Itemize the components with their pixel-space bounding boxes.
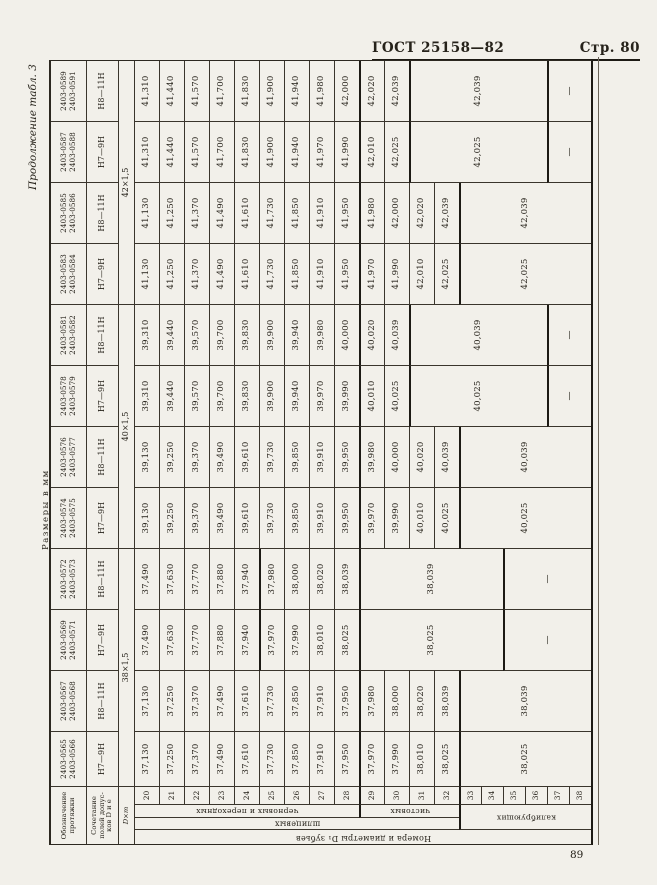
value-cell: 40,000 [334,305,359,366]
page-ref: Стр. 80 [580,40,640,56]
value-cell: 41,730 [259,183,284,244]
value-cell: 41,570 [184,122,209,183]
value-cell: 41,730 [259,244,284,305]
value-cell: 39,940 [284,305,309,366]
value-cell: 42,039 [459,183,591,244]
value-cell: 40,039 [459,427,591,488]
value-cell: 39,830 [234,305,259,366]
value-cell: 41,850 [284,244,309,305]
axis-title: Номера и диаметры D₁ зубьев [134,830,591,844]
value-cell: 39,130 [134,488,159,549]
value-cell: 38,020 [309,549,334,610]
value-cell: 42,000 [334,61,359,122]
designation-cell: 2403-05812403-0582 [51,305,86,366]
value-cell: 38,039 [359,549,503,610]
value-cell: 42,039 [384,61,409,122]
value-cell: 40,039 [384,305,409,366]
designation-cell: 2403-05692403-0571 [51,610,86,671]
tooth-number-cell: 37 [547,787,569,805]
value-cell: 37,630 [159,549,184,610]
value-cell: 42,025 [384,122,409,183]
value-cell: 40,025 [384,366,409,427]
value-cell: 37,910 [309,732,334,787]
value-cell: 39,850 [284,488,309,549]
value-cell: 39,370 [184,427,209,488]
value-cell: 38,000 [384,671,409,732]
value-cell: 42,025 [409,122,547,183]
group-rough: черновых и переходных [134,805,359,818]
tolerance-cell: Н7—9Н [86,610,118,671]
tolerance-cell: Н8—11Н [86,549,118,610]
value-cell: 37,730 [259,671,284,732]
value-cell: 41,940 [284,122,309,183]
dash-cell: — [547,366,591,427]
value-cell: 37,950 [334,732,359,787]
tooth-number-cell: 32 [434,787,459,805]
value-cell: 41,440 [159,61,184,122]
designation-cell: 2403-05672403-0568 [51,671,86,732]
value-cell: 41,980 [309,61,334,122]
value-cell: 37,370 [184,671,209,732]
value-cell: 39,850 [284,427,309,488]
value-cell: 37,490 [209,732,234,787]
value-cell: 41,990 [334,122,359,183]
dash-cell: — [503,610,591,671]
value-cell: 41,980 [359,183,384,244]
value-cell: 41,250 [159,244,184,305]
value-cell: 41,830 [234,122,259,183]
tolerance-cell: Н8—11Н [86,671,118,732]
value-cell: 37,990 [284,610,309,671]
value-cell: 39,730 [259,488,284,549]
tooth-number-cell: 35 [503,787,525,805]
value-cell: 39,970 [309,366,334,427]
designation-cell: 2403-05652403-0566 [51,732,86,787]
value-cell: 42,010 [409,244,434,305]
tooth-number-cell: 38 [569,787,591,805]
tooth-number-cell: 36 [525,787,547,805]
size-group-cell: 38×1,5 [118,549,134,787]
value-cell: 39,440 [159,305,184,366]
value-cell: 41,910 [309,183,334,244]
value-cell: 37,130 [134,732,159,787]
tooth-number-cell: 27 [309,787,334,805]
value-cell: 39,990 [334,366,359,427]
value-cell: 40,025 [459,488,591,549]
value-cell: 41,490 [209,244,234,305]
value-cell: 41,130 [134,183,159,244]
value-cell: 40,025 [409,366,547,427]
value-cell: 39,700 [209,366,234,427]
value-cell: 39,570 [184,305,209,366]
value-cell: 42,000 [384,183,409,244]
designation-cell: 2403-05762403-0577 [51,427,86,488]
value-cell: 41,950 [334,244,359,305]
tooth-number-cell: 30 [384,787,409,805]
value-cell: 37,250 [159,671,184,732]
tooth-number-cell: 25 [259,787,284,805]
value-cell: 37,980 [359,671,384,732]
tooth-number-cell: 31 [409,787,434,805]
value-cell: 41,900 [259,61,284,122]
page-header: ГОСТ 25158—82 Стр. 80 [372,40,640,61]
group-spline: шлицевых [134,818,459,830]
value-cell: 40,010 [409,488,434,549]
value-cell: 37,610 [234,671,259,732]
value-cell: 38,039 [334,549,359,610]
value-cell: 41,310 [134,61,159,122]
value-cell: 41,940 [284,61,309,122]
designation-cell: 2403-05742403-0575 [51,488,86,549]
value-cell: 37,950 [334,671,359,732]
value-cell: 39,250 [159,427,184,488]
value-cell: 38,020 [409,671,434,732]
value-cell: 37,250 [159,732,184,787]
value-cell: 39,900 [259,305,284,366]
value-cell: 39,610 [234,427,259,488]
page-number: 89 [570,849,583,861]
designation-cell: 2403-05832403-0584 [51,244,86,305]
corner-size-label: D×m [118,787,134,844]
value-cell: 41,970 [359,244,384,305]
value-cell: 39,440 [159,366,184,427]
value-cell: 37,990 [384,732,409,787]
value-cell: 39,490 [209,488,234,549]
value-cell: 39,130 [134,427,159,488]
value-cell: 41,250 [159,183,184,244]
value-cell: 41,910 [309,244,334,305]
value-cell: 39,700 [209,305,234,366]
value-cell: 37,630 [159,610,184,671]
value-cell: 41,310 [134,122,159,183]
value-cell: 38,025 [459,732,591,787]
value-cell: 39,310 [134,366,159,427]
value-cell: 41,950 [334,183,359,244]
value-cell: 39,830 [234,366,259,427]
value-cell: 37,490 [134,549,159,610]
value-cell: 39,310 [134,305,159,366]
value-cell: 41,900 [259,122,284,183]
value-cell: 39,970 [359,488,384,549]
value-cell: 42,039 [434,183,459,244]
value-cell: 39,250 [159,488,184,549]
tooth-number-cell: 23 [209,787,234,805]
value-cell: 39,950 [334,488,359,549]
value-cell: 38,010 [409,732,434,787]
tolerance-cell: Н7—9Н [86,732,118,787]
dash-cell: — [547,122,591,183]
scanned-page: { "page": { "gost_header": "ГОСТ 25158—8… [0,0,657,885]
designation-cell: 2403-05852403-0586 [51,183,86,244]
designation-cell: 2403-05782403-0579 [51,366,86,427]
value-cell: 38,039 [459,671,591,732]
value-cell: 38,025 [359,610,503,671]
tolerance-cell: Н8—11Н [86,305,118,366]
broach-table: Обозначение протяжкиСочетание полей допу… [49,60,593,845]
value-cell: 41,610 [234,244,259,305]
tooth-number-cell: 24 [234,787,259,805]
value-cell: 40,020 [359,305,384,366]
value-cell: 38,039 [434,671,459,732]
dash-cell: — [547,61,591,122]
tolerance-cell: Н7—9Н [86,366,118,427]
tolerance-cell: Н8—11Н [86,183,118,244]
value-cell: 41,830 [234,61,259,122]
tooth-number-cell: 22 [184,787,209,805]
value-cell: 37,970 [359,732,384,787]
tolerance-cell: Н7—9Н [86,122,118,183]
value-cell: 41,700 [209,122,234,183]
value-cell: 42,020 [359,61,384,122]
continuation-note: Продолжение табл. 3 [27,64,39,190]
value-cell: 40,020 [409,427,434,488]
gost-number: ГОСТ 25158—82 [372,40,504,56]
corner-designation-label: Обозначение протяжки [51,787,86,844]
value-cell: 38,025 [434,732,459,787]
size-group-cell: 40×1,5 [118,305,134,549]
size-group-cell: 42×1,5 [118,61,134,305]
value-cell: 37,770 [184,610,209,671]
tolerance-cell: Н7—9Н [86,488,118,549]
value-cell: 41,610 [234,183,259,244]
value-cell: 41,490 [209,183,234,244]
value-cell: 37,490 [134,610,159,671]
value-cell: 42,025 [434,244,459,305]
value-cell: 38,025 [334,610,359,671]
value-cell: 41,130 [134,244,159,305]
value-cell: 37,490 [209,671,234,732]
group-calibrating: калибрующих [459,805,591,830]
value-cell: 39,950 [334,427,359,488]
tolerance-cell: Н8—11Н [86,61,118,122]
value-cell: 37,370 [184,732,209,787]
value-cell: 41,850 [284,183,309,244]
value-cell: 42,010 [359,122,384,183]
value-cell: 41,370 [184,244,209,305]
value-cell: 37,880 [209,549,234,610]
value-cell: 37,980 [259,549,284,610]
value-cell: 39,910 [309,427,334,488]
value-cell: 37,970 [259,610,284,671]
value-cell: 41,970 [309,122,334,183]
value-cell: 37,610 [234,732,259,787]
designation-cell: 2403-05892403-0591 [51,61,86,122]
value-cell: 37,850 [284,732,309,787]
value-cell: 39,940 [284,366,309,427]
tooth-number-cell: 28 [334,787,359,805]
dash-cell: — [503,549,591,610]
value-cell: 41,990 [384,244,409,305]
value-cell: 37,850 [284,671,309,732]
tooth-number-cell: 29 [359,787,384,805]
table-outer-rule [598,57,599,845]
tooth-number-cell: 26 [284,787,309,805]
tolerance-cell: Н7—9Н [86,244,118,305]
group-finish: чистовых [359,805,459,818]
value-cell: 38,000 [284,549,309,610]
value-cell: 39,610 [234,488,259,549]
value-cell: 40,039 [409,305,547,366]
value-cell: 37,880 [209,610,234,671]
value-cell: 37,910 [309,671,334,732]
value-cell: 37,940 [234,610,259,671]
value-cell: 37,770 [184,549,209,610]
value-cell: 42,025 [459,244,591,305]
tooth-number-cell: 34 [481,787,503,805]
value-cell: 40,010 [359,366,384,427]
value-cell: 39,570 [184,366,209,427]
designation-cell: 2403-05872403-0588 [51,122,86,183]
tooth-number-cell: 20 [134,787,159,805]
value-cell: 41,570 [184,61,209,122]
value-cell: 37,940 [234,549,259,610]
value-cell: 39,490 [209,427,234,488]
value-cell: 39,980 [309,305,334,366]
value-cell: 39,990 [384,488,409,549]
value-cell: 39,370 [184,488,209,549]
value-cell: 37,730 [259,732,284,787]
value-cell: 38,010 [309,610,334,671]
tolerance-cell: Н8—11Н [86,427,118,488]
designation-cell: 2403-05722403-0573 [51,549,86,610]
value-cell: 41,700 [209,61,234,122]
rotated-table-wrapper: Обозначение протяжкиСочетание полей допу… [49,59,592,845]
value-cell: 41,440 [159,122,184,183]
value-cell: 39,980 [359,427,384,488]
value-cell: 40,000 [384,427,409,488]
value-cell: 42,020 [409,183,434,244]
value-cell: 37,130 [134,671,159,732]
value-cell: 39,910 [309,488,334,549]
value-cell: 42,039 [409,61,547,122]
value-cell: 40,039 [434,427,459,488]
tooth-number-cell: 33 [459,787,481,805]
dash-cell: — [547,305,591,366]
value-cell: 39,900 [259,366,284,427]
value-cell: 41,370 [184,183,209,244]
tooth-number-cell: 21 [159,787,184,805]
corner-tolerance-label: Сочетание полей допус­ков D и е [86,787,118,844]
value-cell: 40,025 [434,488,459,549]
value-cell: 39,730 [259,427,284,488]
